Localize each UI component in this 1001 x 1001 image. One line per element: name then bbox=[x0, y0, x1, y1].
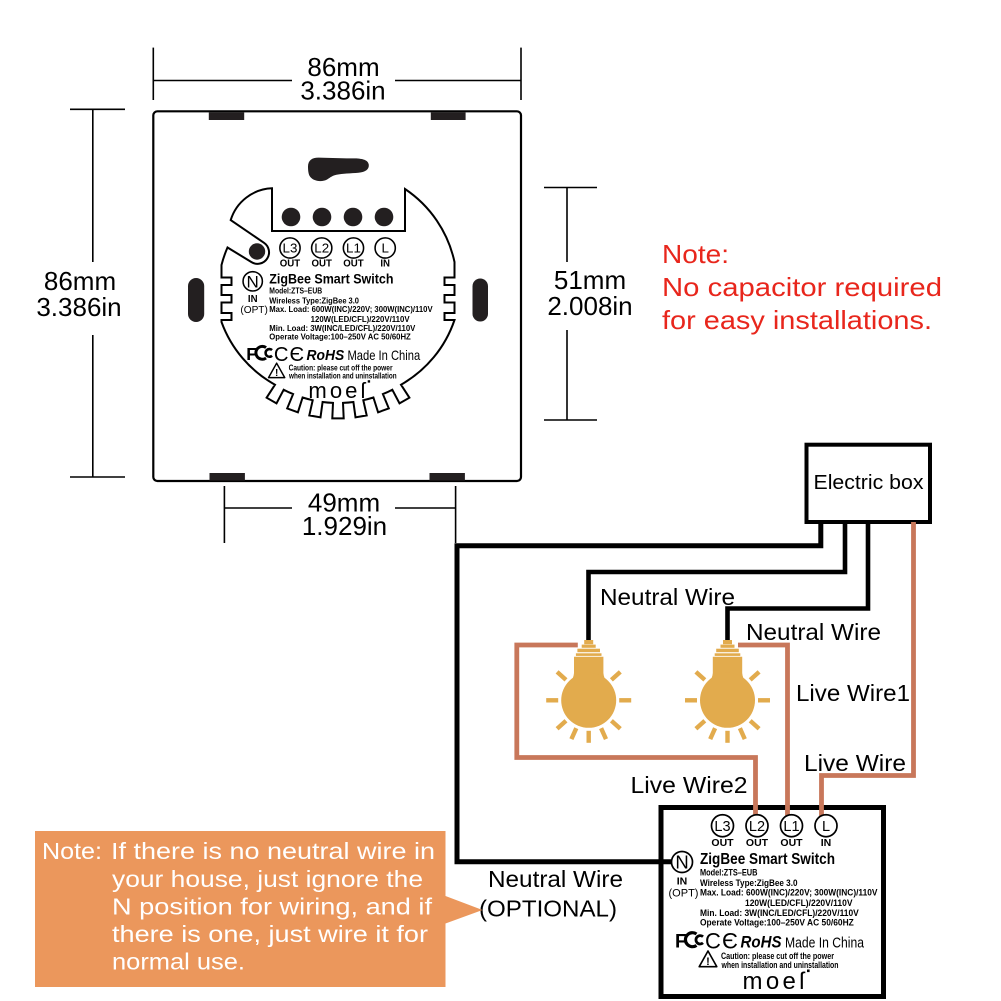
svg-text:Note:: Note: bbox=[42, 838, 102, 864]
svg-text:there is one, just wire it for: there is one, just wire it for bbox=[112, 921, 428, 947]
svg-text:N position for wiring, and if: N position for wiring, and if bbox=[112, 894, 433, 920]
svg-text:Neutral Wire: Neutral Wire bbox=[600, 584, 735, 610]
svg-text:3.386in: 3.386in bbox=[36, 292, 121, 322]
svg-text:your house, just ignore the: your house, just ignore the bbox=[112, 866, 423, 892]
svg-text:Live Wire2: Live Wire2 bbox=[631, 772, 748, 798]
svg-text:(OPTIONAL): (OPTIONAL) bbox=[479, 896, 617, 922]
svg-text:1.929in: 1.929in bbox=[302, 511, 387, 541]
svg-text:3.386in: 3.386in bbox=[300, 76, 385, 106]
svg-text:Note:: Note: bbox=[662, 239, 729, 269]
svg-text:Live Wire: Live Wire bbox=[804, 750, 906, 776]
svg-text:Neutral Wire: Neutral Wire bbox=[746, 619, 881, 645]
svg-text:Electric box: Electric box bbox=[814, 472, 924, 494]
svg-text:Live Wire1: Live Wire1 bbox=[796, 680, 910, 706]
svg-text:2.008in: 2.008in bbox=[547, 291, 632, 321]
svg-text:normal use.: normal use. bbox=[112, 949, 245, 975]
svg-text:No capacitor required: No capacitor required bbox=[662, 272, 942, 302]
svg-text:for easy installations.: for easy installations. bbox=[662, 305, 932, 335]
svg-text:Neutral Wire: Neutral Wire bbox=[488, 866, 623, 892]
svg-text:If there is no neutral wire in: If there is no neutral wire in bbox=[111, 838, 435, 864]
